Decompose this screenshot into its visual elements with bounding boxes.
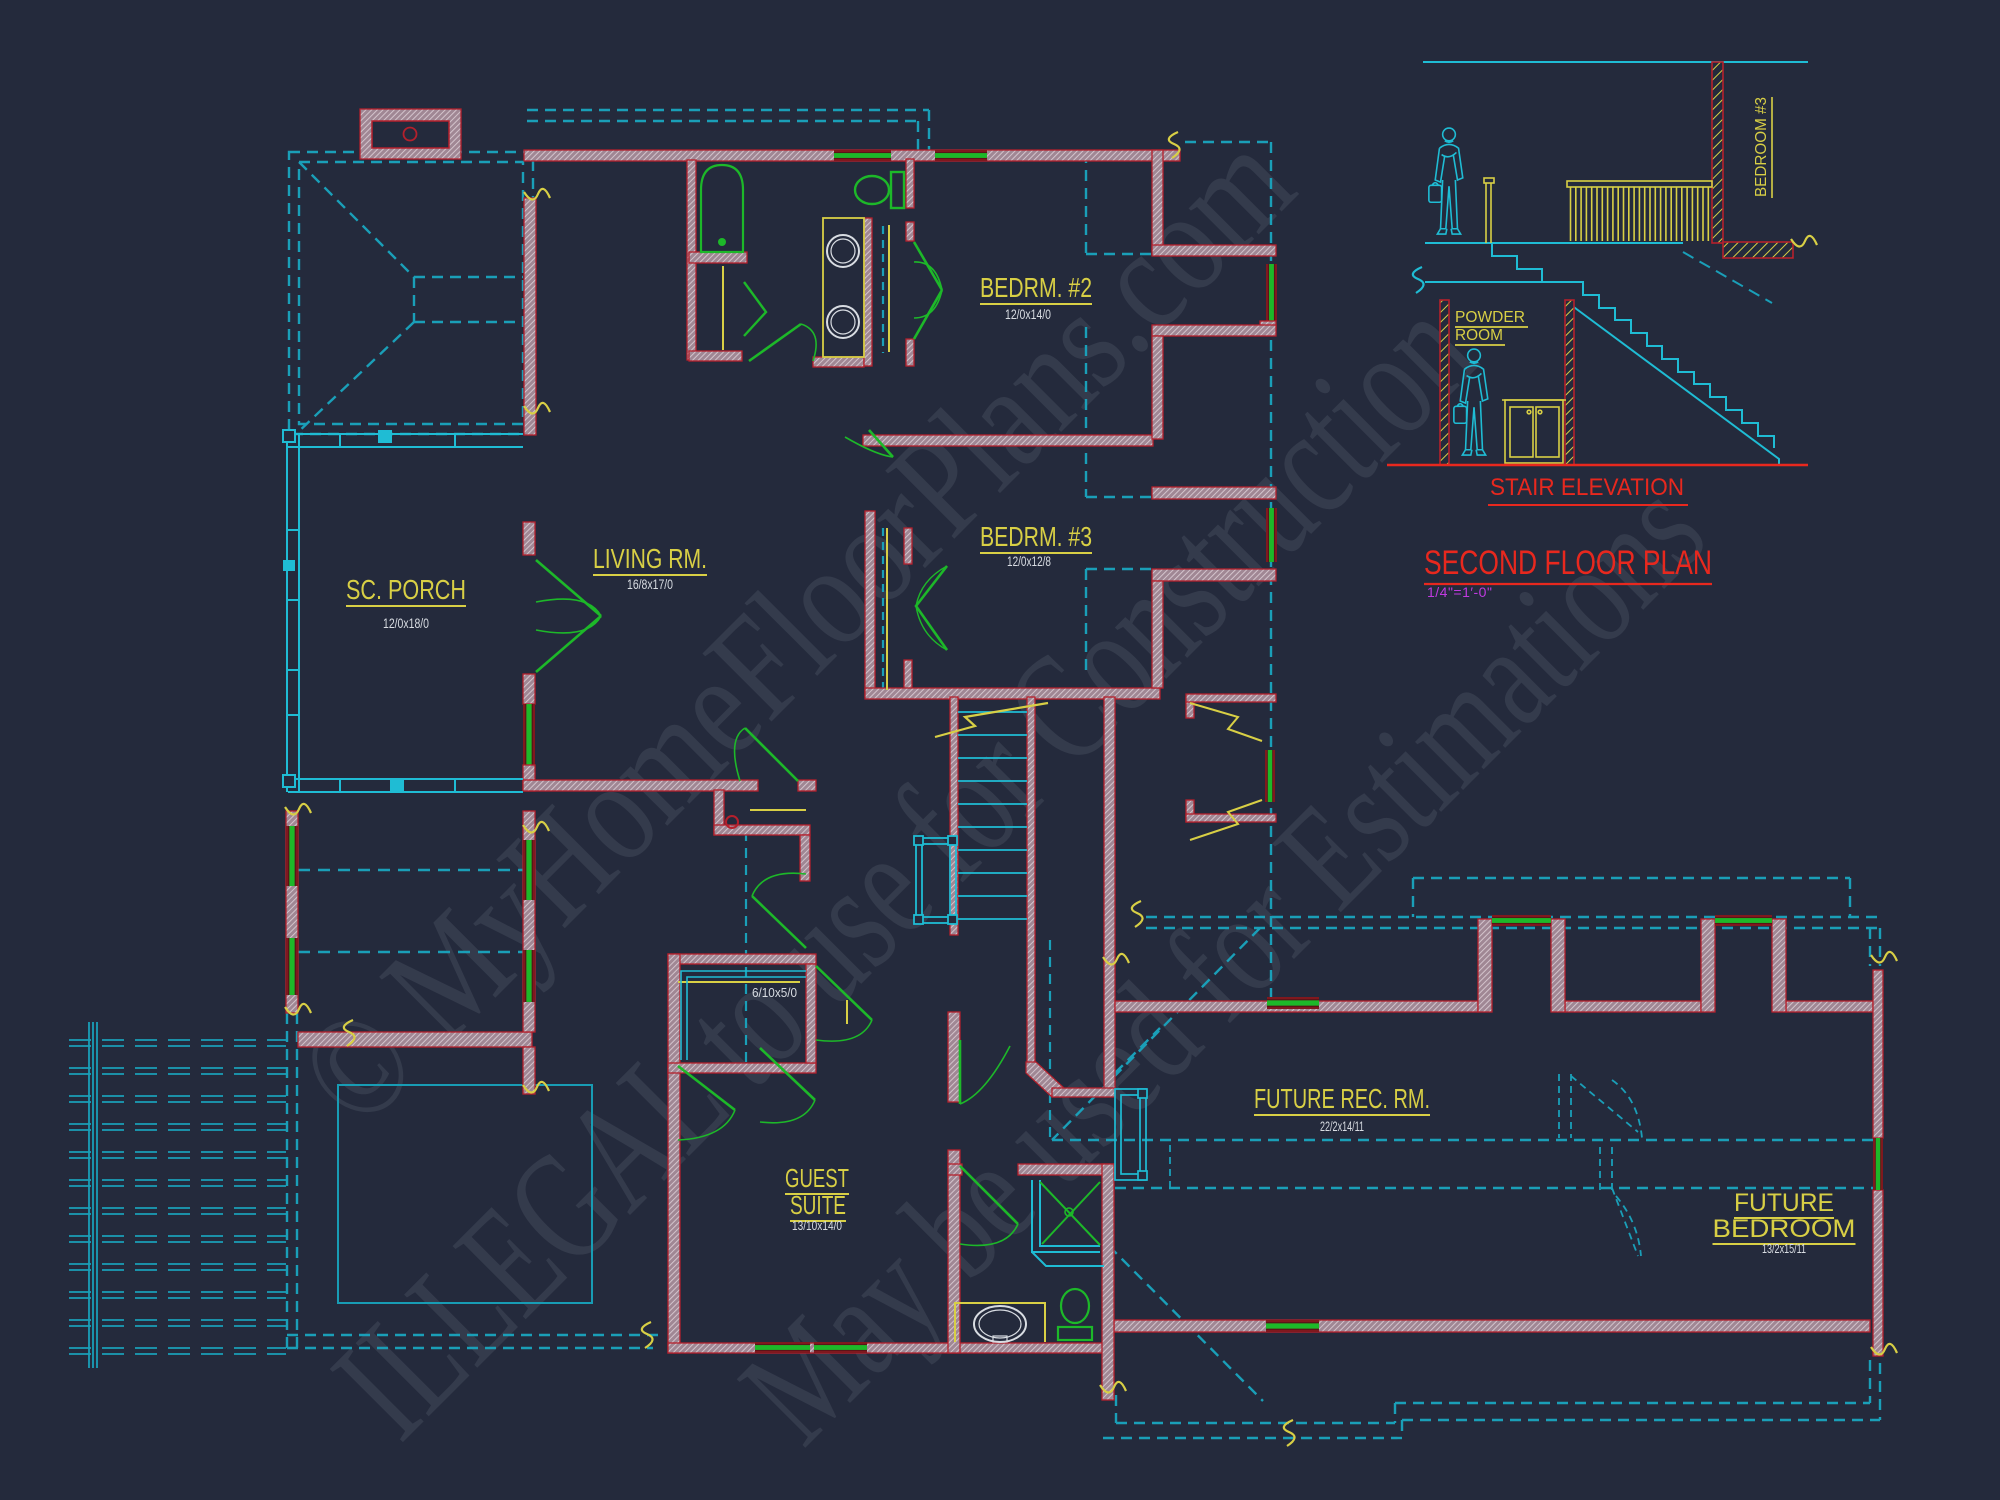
svg-text:STAIR ELEVATION: STAIR ELEVATION [1490,474,1684,501]
svg-text:1/4"=1′-0": 1/4"=1′-0" [1427,584,1492,600]
svg-text:12/0x14/0: 12/0x14/0 [1005,306,1051,322]
svg-text:13/2x15/11: 13/2x15/11 [1762,1241,1806,1256]
svg-text:22/2x14/11: 22/2x14/11 [1320,1118,1364,1134]
svg-text:POWDER: POWDER [1455,309,1525,326]
svg-text:LIVING RM.: LIVING RM. [593,543,707,574]
svg-text:BEDROOM: BEDROOM [1713,1215,1856,1243]
svg-text:BEDRM. #3: BEDRM. #3 [980,521,1092,552]
svg-text:16/8x17/0: 16/8x17/0 [627,576,673,592]
svg-text:12/0x12/8: 12/0x12/8 [1007,553,1051,569]
svg-text:BEDROOM #3: BEDROOM #3 [1753,97,1770,197]
svg-text:6/10x5/0: 6/10x5/0 [752,985,797,1000]
svg-text:GUEST: GUEST [785,1163,849,1193]
svg-text:SUITE: SUITE [790,1190,846,1220]
svg-text:FUTURE: FUTURE [1734,1189,1834,1217]
svg-text:BEDRM. #2: BEDRM. #2 [980,272,1092,303]
svg-text:SC. PORCH: SC. PORCH [346,574,466,605]
svg-text:ROOM: ROOM [1455,327,1503,344]
svg-text:FUTURE REC. RM.: FUTURE REC. RM. [1254,1083,1430,1114]
svg-text:SECOND FLOOR PLAN: SECOND FLOOR PLAN [1424,544,1712,582]
svg-text:13/10x14/0: 13/10x14/0 [792,1218,842,1233]
svg-text:12/0x18/0: 12/0x18/0 [383,615,429,631]
